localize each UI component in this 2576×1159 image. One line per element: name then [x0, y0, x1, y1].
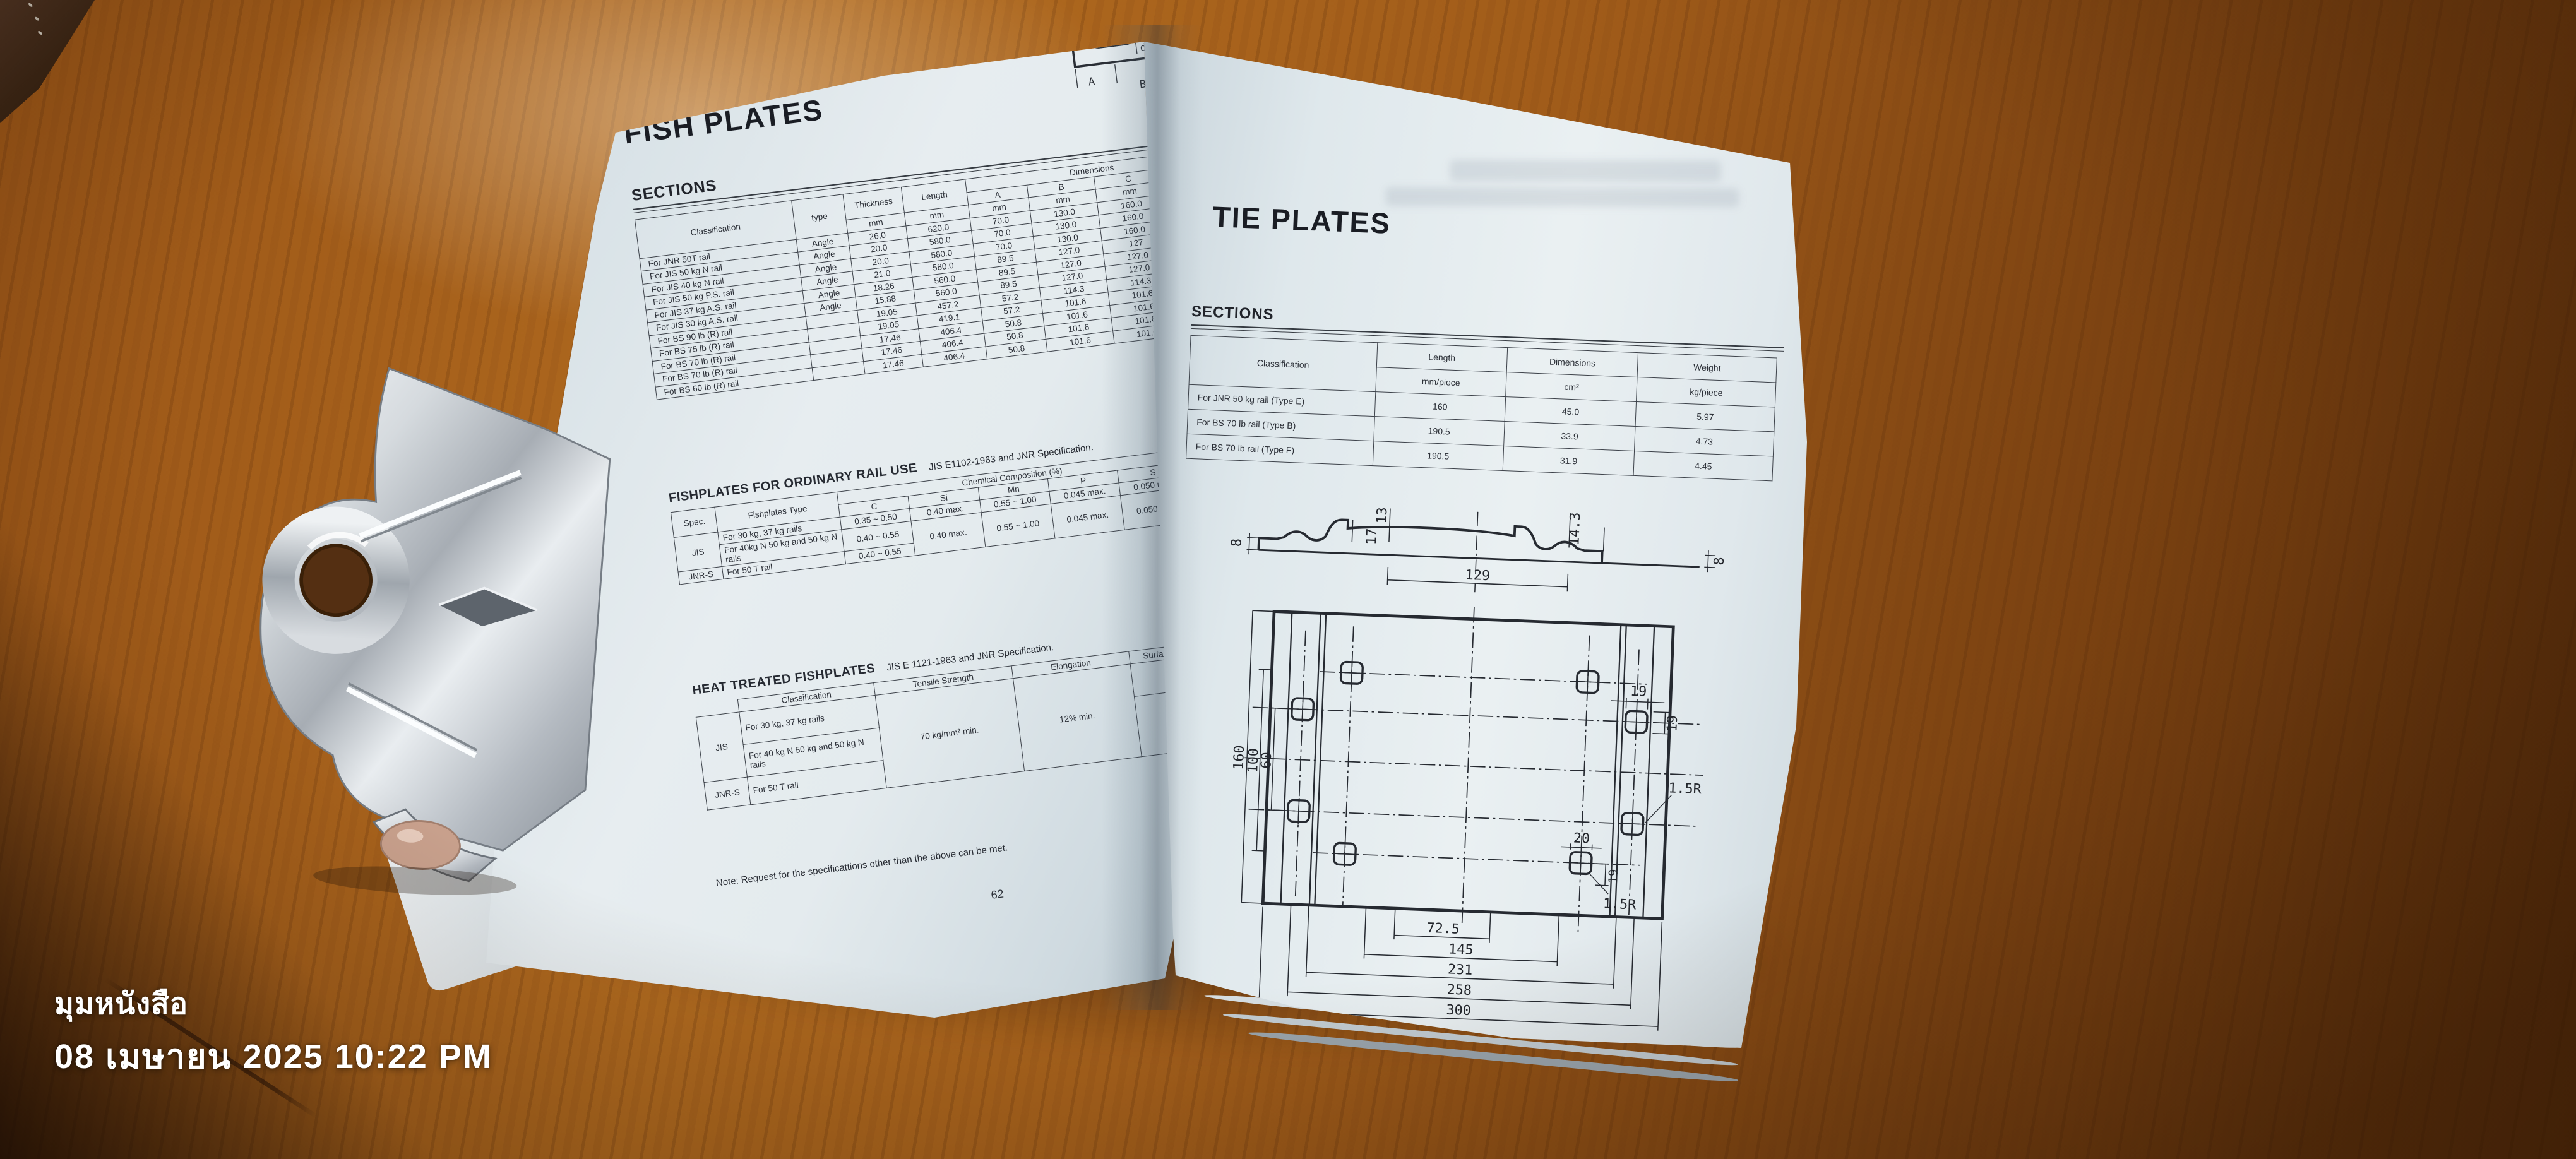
right-page-content: TIE PLATES SECTIONS Classification Lengt… [1196, 180, 1815, 204]
photo-canvas: FISH PLATES A B d SECTIONS [0, 0, 2576, 1159]
background-object [0, 0, 126, 133]
table-cell: 190.5 [1373, 441, 1504, 471]
svg-text:19: 19 [1606, 869, 1621, 884]
svg-text:8: 8 [1229, 538, 1244, 547]
svg-text:13: 13 [1374, 507, 1390, 524]
clip-eyelet-hole [299, 544, 373, 617]
footnote: Note: Request for the specificattions ot… [715, 842, 1008, 889]
right-page: TIE PLATES SECTIONS Classification Lengt… [1136, 32, 1844, 1105]
table-cell: 4.45 [1633, 451, 1773, 480]
diagram-label-a: A [1088, 75, 1096, 88]
svg-text:8: 8 [1712, 557, 1727, 566]
svg-text:1.5R: 1.5R [1602, 896, 1637, 913]
svg-text:72.5: 72.5 [1426, 920, 1460, 937]
bleed-through-text [1450, 160, 1721, 182]
svg-text:60: 60 [1258, 752, 1275, 769]
camera-watermark-datetime: 08 เมษายน 2025 10:22 PM [54, 1029, 492, 1083]
binder-clip [186, 330, 635, 920]
page-title-tie-plates: TIE PLATES [1212, 199, 1392, 241]
svg-text:20: 20 [1573, 831, 1590, 847]
svg-text:145: 145 [1448, 941, 1474, 958]
fishplate-hole [1153, 20, 1174, 40]
tie-plate-drawing: 8 13 17 14.3 129 8 160 100 60 19 19 20 1… [1208, 484, 1740, 1040]
fishplate-slot [1087, 23, 1135, 49]
svg-text:258: 258 [1446, 982, 1472, 999]
svg-text:129: 129 [1465, 568, 1490, 584]
svg-text:231: 231 [1448, 961, 1473, 978]
bleed-through-text [1385, 187, 1739, 207]
camera-watermark-label: มุมหนังสือ [54, 980, 188, 1027]
tie-plate-sections-table: Classification Length Dimensions Weight … [1186, 335, 1777, 482]
col-type: type [791, 194, 847, 239]
svg-text:14.3: 14.3 [1566, 512, 1583, 545]
svg-text:19: 19 [1630, 684, 1647, 700]
page-number-62: 62 [990, 888, 1004, 902]
svg-text:1.5R: 1.5R [1668, 780, 1702, 797]
table-cell: 31.9 [1503, 446, 1635, 475]
svg-text:17: 17 [1364, 528, 1380, 545]
svg-text:19: 19 [1664, 715, 1681, 732]
svg-text:300: 300 [1446, 1002, 1471, 1019]
